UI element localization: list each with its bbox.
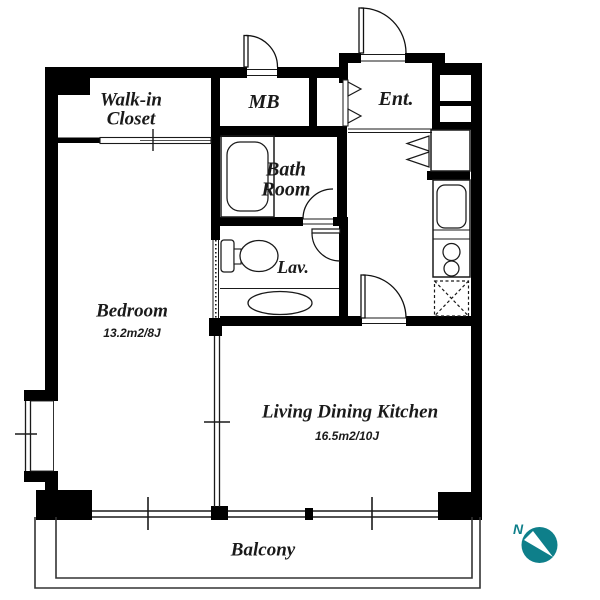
balcony-label: Balcony: [231, 540, 295, 559]
living-dining-kitchen-label: Living Dining Kitchen: [262, 402, 438, 421]
floor-plan-drawing: [0, 0, 600, 600]
living-dining-kitchen-area-label: 16.5m2/10J: [315, 430, 379, 442]
refrigerator-space-icon: [435, 281, 469, 316]
toilet-icon: [221, 240, 278, 272]
stove-icon: [443, 244, 460, 277]
entrance-label: Ent.: [378, 89, 413, 109]
ldk-door-icon: [361, 275, 406, 318]
kitchen-sink-icon: [437, 185, 466, 228]
shoe-cabinet-icon: [343, 80, 361, 126]
lavatory-label: Lav.: [277, 258, 309, 276]
bedroom-window: [15, 401, 54, 471]
compass-icon: [522, 527, 558, 563]
walls: [24, 53, 482, 520]
room-divider-sliding-door: [204, 336, 230, 507]
floor-plan: Walk-in Closet MB Ent. Bath Room Lav. Be…: [0, 0, 600, 600]
lavatory-door-icon: [312, 229, 340, 261]
bedroom-area-label: 13.2m2/8J: [103, 327, 160, 339]
entrance-door-icon: [359, 8, 406, 53]
genkan-step: [348, 129, 432, 133]
mb-door-icon: [244, 36, 278, 68]
hall-closet-bifold-icon: [407, 130, 470, 171]
vanity-sink-icon: [220, 289, 339, 315]
compass-north-label: N: [513, 522, 523, 536]
dotted-partition: [213, 240, 219, 318]
walk-in-closet-label: Walk-in Closet: [100, 91, 162, 130]
closet-sliding-door: [100, 129, 211, 151]
meter-box-label: MB: [248, 92, 279, 112]
bedroom-label: Bedroom: [96, 301, 168, 320]
bath-room-label: Bath Room: [262, 160, 311, 199]
balcony-windows: [92, 497, 438, 530]
